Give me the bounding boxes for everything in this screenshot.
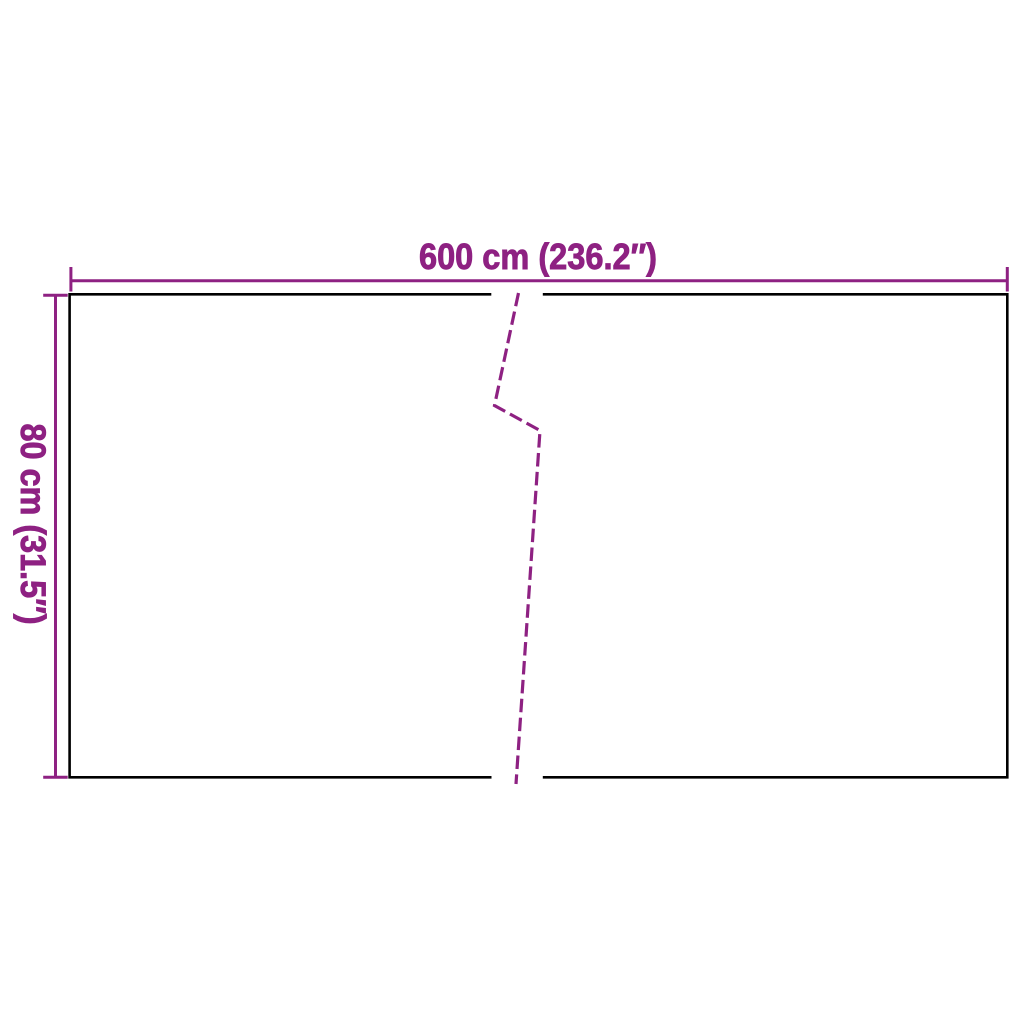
- svg-text:600 cm (236.2″): 600 cm (236.2″): [419, 236, 657, 277]
- svg-text:80 cm (31.5″): 80 cm (31.5″): [13, 424, 53, 625]
